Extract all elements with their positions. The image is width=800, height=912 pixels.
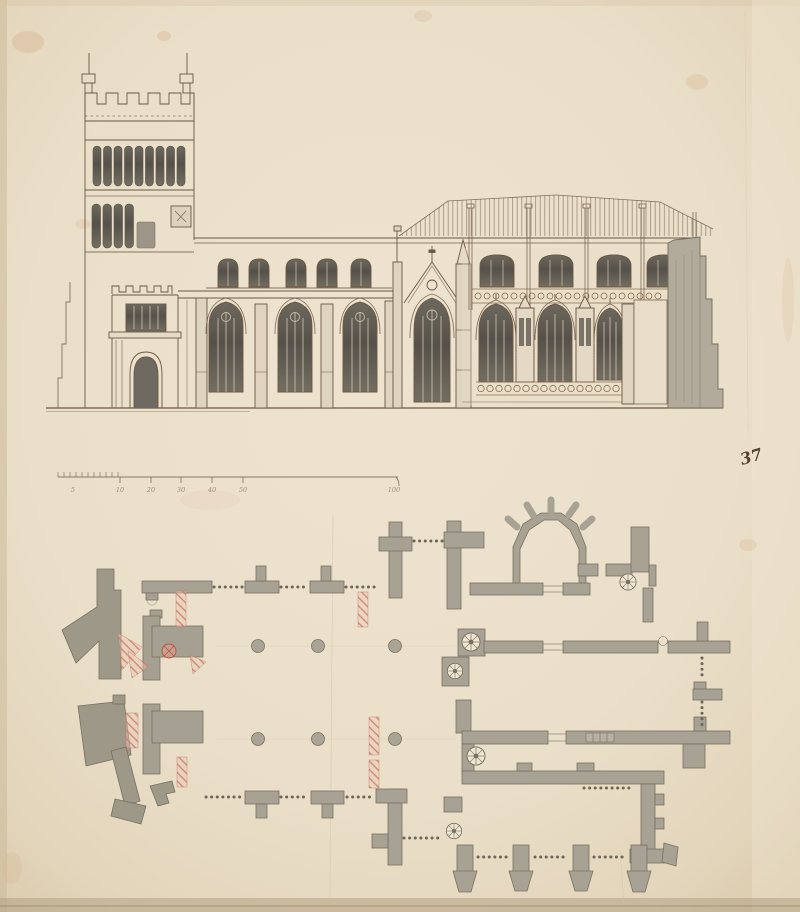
left-edge-shadow xyxy=(0,0,7,912)
church-drawing: 5 10 20 30 40 50 100 37 xyxy=(0,0,800,912)
spiral-stair xyxy=(620,574,636,590)
choir-buttress xyxy=(622,304,634,404)
spiral-stair xyxy=(467,747,485,765)
spiral-stair xyxy=(462,633,480,651)
scale-tick-label: 20 xyxy=(146,486,155,494)
scale-tick-label: 100 xyxy=(388,486,400,494)
circled-cross-mark xyxy=(162,644,176,658)
spiral-stair xyxy=(447,663,462,678)
porch-cornice xyxy=(109,332,181,338)
scale-tick-label: 5 xyxy=(71,486,75,494)
door-steps xyxy=(586,733,614,742)
porch-window xyxy=(126,304,166,331)
belfry-windows-upper xyxy=(93,146,185,186)
clock-face xyxy=(171,206,191,227)
spiral-stair xyxy=(446,823,461,838)
scale-tick-label: 10 xyxy=(116,486,124,494)
scale-tick-label: 30 xyxy=(177,486,185,494)
aisle-windows xyxy=(206,298,380,392)
drawing-sheet: 5 10 20 30 40 50 100 37 xyxy=(0,0,800,912)
scale-tick-label: 50 xyxy=(239,486,247,494)
scale-tick-label: 40 xyxy=(207,486,216,494)
bottom-edge-shadow xyxy=(0,898,800,912)
plain-bay xyxy=(634,300,667,404)
